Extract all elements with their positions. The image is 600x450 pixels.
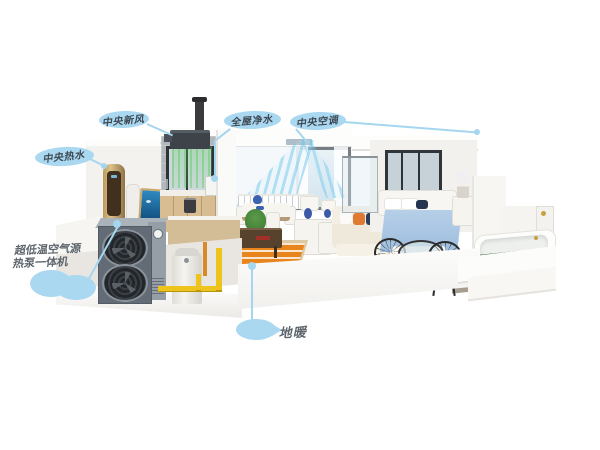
- vase-flowers: [457, 172, 469, 198]
- heat-pump-label-line2: 热泵一体机: [12, 255, 80, 270]
- kitchen-faucet: [166, 179, 168, 189]
- espresso-machine: [184, 198, 196, 213]
- callout-floor-heating-text: 地暖: [278, 322, 310, 342]
- leader-dot: [474, 129, 480, 135]
- sofa-pillow-orange: [353, 213, 365, 225]
- blue-plant-decor: [253, 195, 262, 204]
- callout-purified-water-text: 全屋净水: [223, 109, 282, 129]
- bed-pillow-navy: [416, 200, 428, 209]
- yellow-pipe-run: [158, 286, 222, 291]
- leader-dot: [248, 262, 256, 270]
- bedroom-window-mullion: [418, 152, 420, 191]
- buffer-tank-cap: [175, 248, 199, 256]
- leader-dot: [101, 163, 107, 169]
- table-lamp-body: [324, 209, 331, 218]
- bed-pillow: [384, 198, 402, 210]
- heat-pump-fan-bottom: [102, 264, 148, 302]
- callout-fresh-air-text: 中央新风: [98, 110, 150, 129]
- callout-purified-water: 全屋净水: [224, 110, 282, 130]
- floor-heating-label: 地暖: [278, 326, 309, 342]
- flue-pipe: [195, 100, 204, 134]
- heat-pump-house-illustration: 中央新风 全屋净水 中央空调 中央热水 超低温空气源 热泵一体机 地暖: [0, 0, 600, 450]
- leader-dot: [211, 175, 218, 182]
- bathtub-tap-gold: [534, 236, 538, 240]
- heat-pump-fan-top: [102, 229, 148, 267]
- tank-display: [111, 175, 117, 178]
- yellow-pipe-riser: [216, 248, 222, 290]
- coffee-table-books: [256, 236, 270, 240]
- fresh-air-ceiling-unit: [170, 130, 210, 149]
- callout-heat-pump-text: 超低温空气源 热泵一体机: [12, 242, 82, 270]
- callout-floor-heating-cloud: [236, 319, 276, 340]
- sofa-pillow-white: [340, 212, 352, 224]
- leader-dot: [113, 220, 121, 228]
- bedroom-window-mullion: [401, 152, 403, 191]
- aquarium-fish: [146, 200, 151, 203]
- flue-cap: [192, 97, 207, 102]
- callout-fresh-air: 中央新风: [99, 110, 150, 129]
- heat-pump-logo: [153, 229, 163, 239]
- yellow-pipe-loop: [196, 274, 201, 290]
- leader-purified-water-drop: [214, 140, 216, 177]
- shower-enclosure: [342, 156, 378, 213]
- leader-central-ac-long: [344, 121, 478, 134]
- leader-floor-heating: [251, 267, 253, 321]
- heat-pump-label-line1: 超低温空气源: [14, 242, 82, 257]
- coffee-table-leg: [274, 246, 277, 258]
- buffer-tank-logo: [184, 258, 189, 263]
- orange-wall-pipe: [203, 242, 207, 276]
- faucet-gold: [541, 211, 546, 216]
- table-lamp-body: [304, 208, 312, 219]
- callout-heat-pump-cloud: [56, 275, 96, 300]
